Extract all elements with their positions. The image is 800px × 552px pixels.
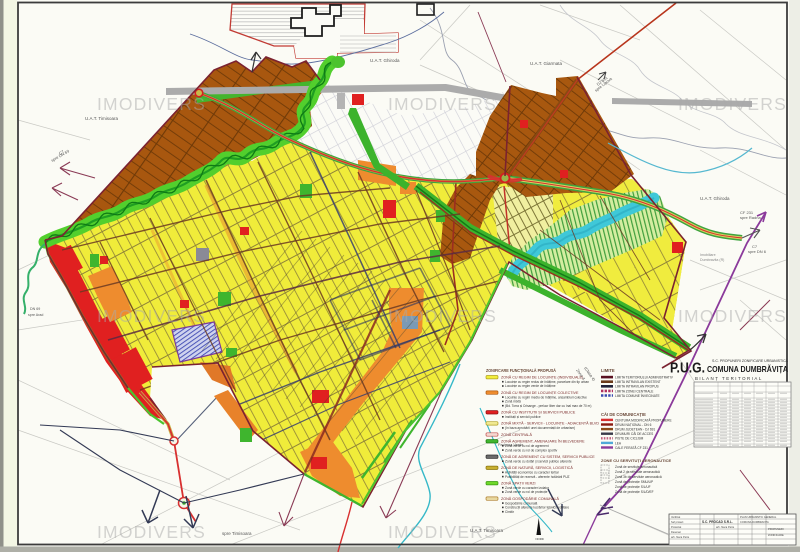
svg-text:ZONĂ DE AGREMENT CU SISTEM, SE: ZONĂ DE AGREMENT CU SISTEM, SERVICII PUB… [501,455,595,459]
svg-text:ZONĂ SPAȚII VERZI: ZONĂ SPAȚII VERZI [501,482,536,486]
svg-text:Zonă de protecție SMU/UP: Zonă de protecție SMU/UP [615,480,653,484]
svg-text:U.A.T. Timisoara: U.A.T. Timisoara [85,116,119,121]
svg-text:U.A.T. Timisoara: U.A.T. Timisoara [470,528,504,533]
svg-text:DRUM JUDEȚEAN - DJ 691: DRUM JUDEȚEAN - DJ 691 [615,428,655,432]
svg-text:ZONĂ CU REGIM DE LOCUINȚE (IND: ZONĂ CU REGIM DE LOCUINȚE (INDIVIDUALE) [501,376,583,380]
svg-text:arh. Neca Petre: arh. Neca Petre [716,525,735,529]
svg-text:LEA: LEA [615,441,622,445]
svg-text:IMODIVERS: IMODIVERS [388,94,497,114]
svg-text:ZONĂ CU REGIM DE LOCUINȚE COLE: ZONĂ CU REGIM DE LOCUINȚE COLECTIVE [501,391,579,395]
svg-text:LIMITE: LIMITE [601,368,615,373]
svg-text:Zonă verde cu rol de protecție: Zonă verde cu rol de protecție [505,490,548,494]
svg-text:IMODIVERS: IMODIVERS [678,306,787,326]
svg-text:Proiectat: Proiectat [671,525,682,529]
svg-text:Cimitir: Cimitir [505,510,515,514]
svg-text:(Bd. Torra și Crisange - prelu: (Bd. Torra și Crisange - prelucr liber d… [505,404,591,408]
svg-text:COMUNA DUMBRAVITA: COMUNA DUMBRAVITA [740,520,769,524]
svg-text:IMODIVERS: IMODIVERS [97,522,206,542]
svg-text:ZONIFICARE: ZONIFICARE [768,533,784,537]
svg-text:spre Arad: spre Arad [28,313,43,317]
svg-text:PISTE DE CICLISM: PISTE DE CICLISM [615,437,644,441]
svg-text:Desenat: Desenat [671,530,681,534]
svg-text:P.U.G.: P.U.G. [670,361,705,377]
svg-text:arh. Neca Petre: arh. Neca Petre [671,535,690,539]
svg-text:spre Timisoara: spre Timisoara [222,531,252,536]
svg-text:Zonă de protecție S/L/UF: Zonă de protecție S/L/UF [615,485,651,489]
svg-text:U.A.T. Giarmata: U.A.T. Giarmata [530,61,563,66]
svg-text:Zonă de protecție S/L/D/EF: Zonă de protecție S/L/D/EF [615,490,654,494]
svg-text:Zonă 3b de servitute aeronauti: Zonă 3b de servitute aeronautică [615,475,662,479]
svg-text:S.C. PROCAD S.R.L.: S.C. PROCAD S.R.L. [702,520,733,524]
svg-text:CENTURA MODIFICATĂ PROPUNERE: CENTURA MODIFICATĂ PROPUNERE [615,418,672,422]
svg-text:S.C. PROPUNERI ZONIFICARE URBA: S.C. PROPUNERI ZONIFICARE URBANISTICĂ [712,359,789,363]
svg-text:ZONĂ DE NATURĂ, SERVICII, LOGI: ZONĂ DE NATURĂ, SERVICII, LOGISTICĂ [501,466,573,470]
svg-text:ZONE CU SERVITUȚI AERONAUTICE: ZONE CU SERVITUȚI AERONAUTICE [601,458,672,463]
svg-text:CĂI DE COMUNICAȚIE: CĂI DE COMUNICAȚIE [601,412,646,417]
svg-text:CALE FERATĂ CF 231: CALE FERATĂ CF 231 [615,446,648,450]
svg-text:Imobiliare: Imobiliare [700,253,716,257]
svg-text:Zonă 2 de servitute aeronautic: Zonă 2 de servitute aeronautică [615,470,660,474]
svg-text:Dumbravita (R): Dumbravita (R) [700,258,724,262]
svg-text:ZONIFICARE FUNCȚIONALĂ PROPUSĂ: ZONIFICARE FUNCȚIONALĂ PROPUSĂ [486,368,556,373]
svg-text:ZONĂ CENTRALĂ: ZONĂ CENTRALĂ [501,433,532,437]
svg-text:spre DN 6: spre DN 6 [748,249,767,254]
svg-text:PLAN URBANISTIC GENERAL: PLAN URBANISTIC GENERAL [740,515,777,519]
svg-text:IMODIVERS: IMODIVERS [97,306,206,326]
svg-text:ZONĂ GOSPODĂRIE COMUNALĂ: ZONĂ GOSPODĂRIE COMUNALĂ [501,497,560,501]
svg-text:Locuințe cu regim verde de înă: Locuințe cu regim verde de înălțime [505,384,556,388]
svg-text:IMODIVERS: IMODIVERS [97,94,206,114]
svg-text:LIMITA INTRAVILAN PROPUS: LIMITA INTRAVILAN PROPUS [615,385,659,389]
svg-text:Sef proiect: Sef proiect [671,520,684,524]
svg-text:IMODIVERS: IMODIVERS [678,94,787,114]
svg-text:Posibilități de rezervă - afer: Posibilități de rezervă - aferente hotăr… [505,475,570,479]
svg-text:Construcții aferente lucrărilo: Construcții aferente lucrărilor tehnico-… [505,506,569,510]
svg-text:IMODIVERS: IMODIVERS [388,306,497,326]
svg-text:ZONĂ MIXTĂ - SERVICII - LOCUIN: ZONĂ MIXTĂ - SERVICII - LOCUINȚE - ADIAC… [501,422,599,426]
svg-text:(în baza aprobării unei docume: (în baza aprobării unei documentații de … [505,426,575,430]
svg-text:COMUNA DUMBRĂVIȚA: COMUNA DUMBRĂVIȚA [707,364,788,374]
svg-text:spre Radna: spre Radna [740,215,761,220]
svg-text:DRUMURI CĂI DE ACCES: DRUMURI CĂI DE ACCES [615,432,653,436]
svg-text:LIMITA TERITORIULUI ADMINISTRA: LIMITA TERITORIULUI ADMINISTRATIV [615,376,674,380]
svg-text:BILANȚ TERITORIAL: BILANȚ TERITORIAL [695,376,763,381]
svg-text:DN 69: DN 69 [30,307,40,311]
svg-text:U.A.T. Ghiroda: U.A.T. Ghiroda [370,58,400,63]
svg-text:ZONĂ CU INSTITUȚII ȘI SERVICII: ZONĂ CU INSTITUȚII ȘI SERVICII PUBLICE [501,411,576,415]
svg-text:LIMITA COMUNE ÎNVECINATE: LIMITA COMUNE ÎNVECINATE [615,394,660,398]
svg-text:ZONĂ AGREMENT, AMENAJARE ÎN BE: ZONĂ AGREMENT, AMENAJARE ÎN BELVEDERE [501,439,585,444]
svg-text:Instituții și servicii publice: Instituții și servicii publice [505,415,541,419]
svg-text:Zonă verde cu rol de complex s: Zonă verde cu rol de complex sportiv [505,448,558,452]
svg-text:U.A.T. Ghiroda: U.A.T. Ghiroda [700,196,730,201]
svg-text:DRUM NAȚIONAL - DN 6: DRUM NAȚIONAL - DN 6 [615,423,652,427]
svg-text:Verificat: Verificat [671,515,681,519]
svg-text:Zonă verde cu dotări și servic: Zonă verde cu dotări și servicii publice… [505,459,572,463]
svg-text:PROPUNERI: PROPUNERI [768,527,784,531]
svg-text:LIMITA INTRAVILAN EXISTENT: LIMITA INTRAVILAN EXISTENT [615,380,661,384]
svg-text:LIMITA ZONEI CENTRALE: LIMITA ZONEI CENTRALE [615,389,653,393]
svg-text:NORD: NORD [536,537,544,541]
svg-text:Zonă de servitute aeronautică: Zonă de servitute aeronautică [615,465,657,469]
